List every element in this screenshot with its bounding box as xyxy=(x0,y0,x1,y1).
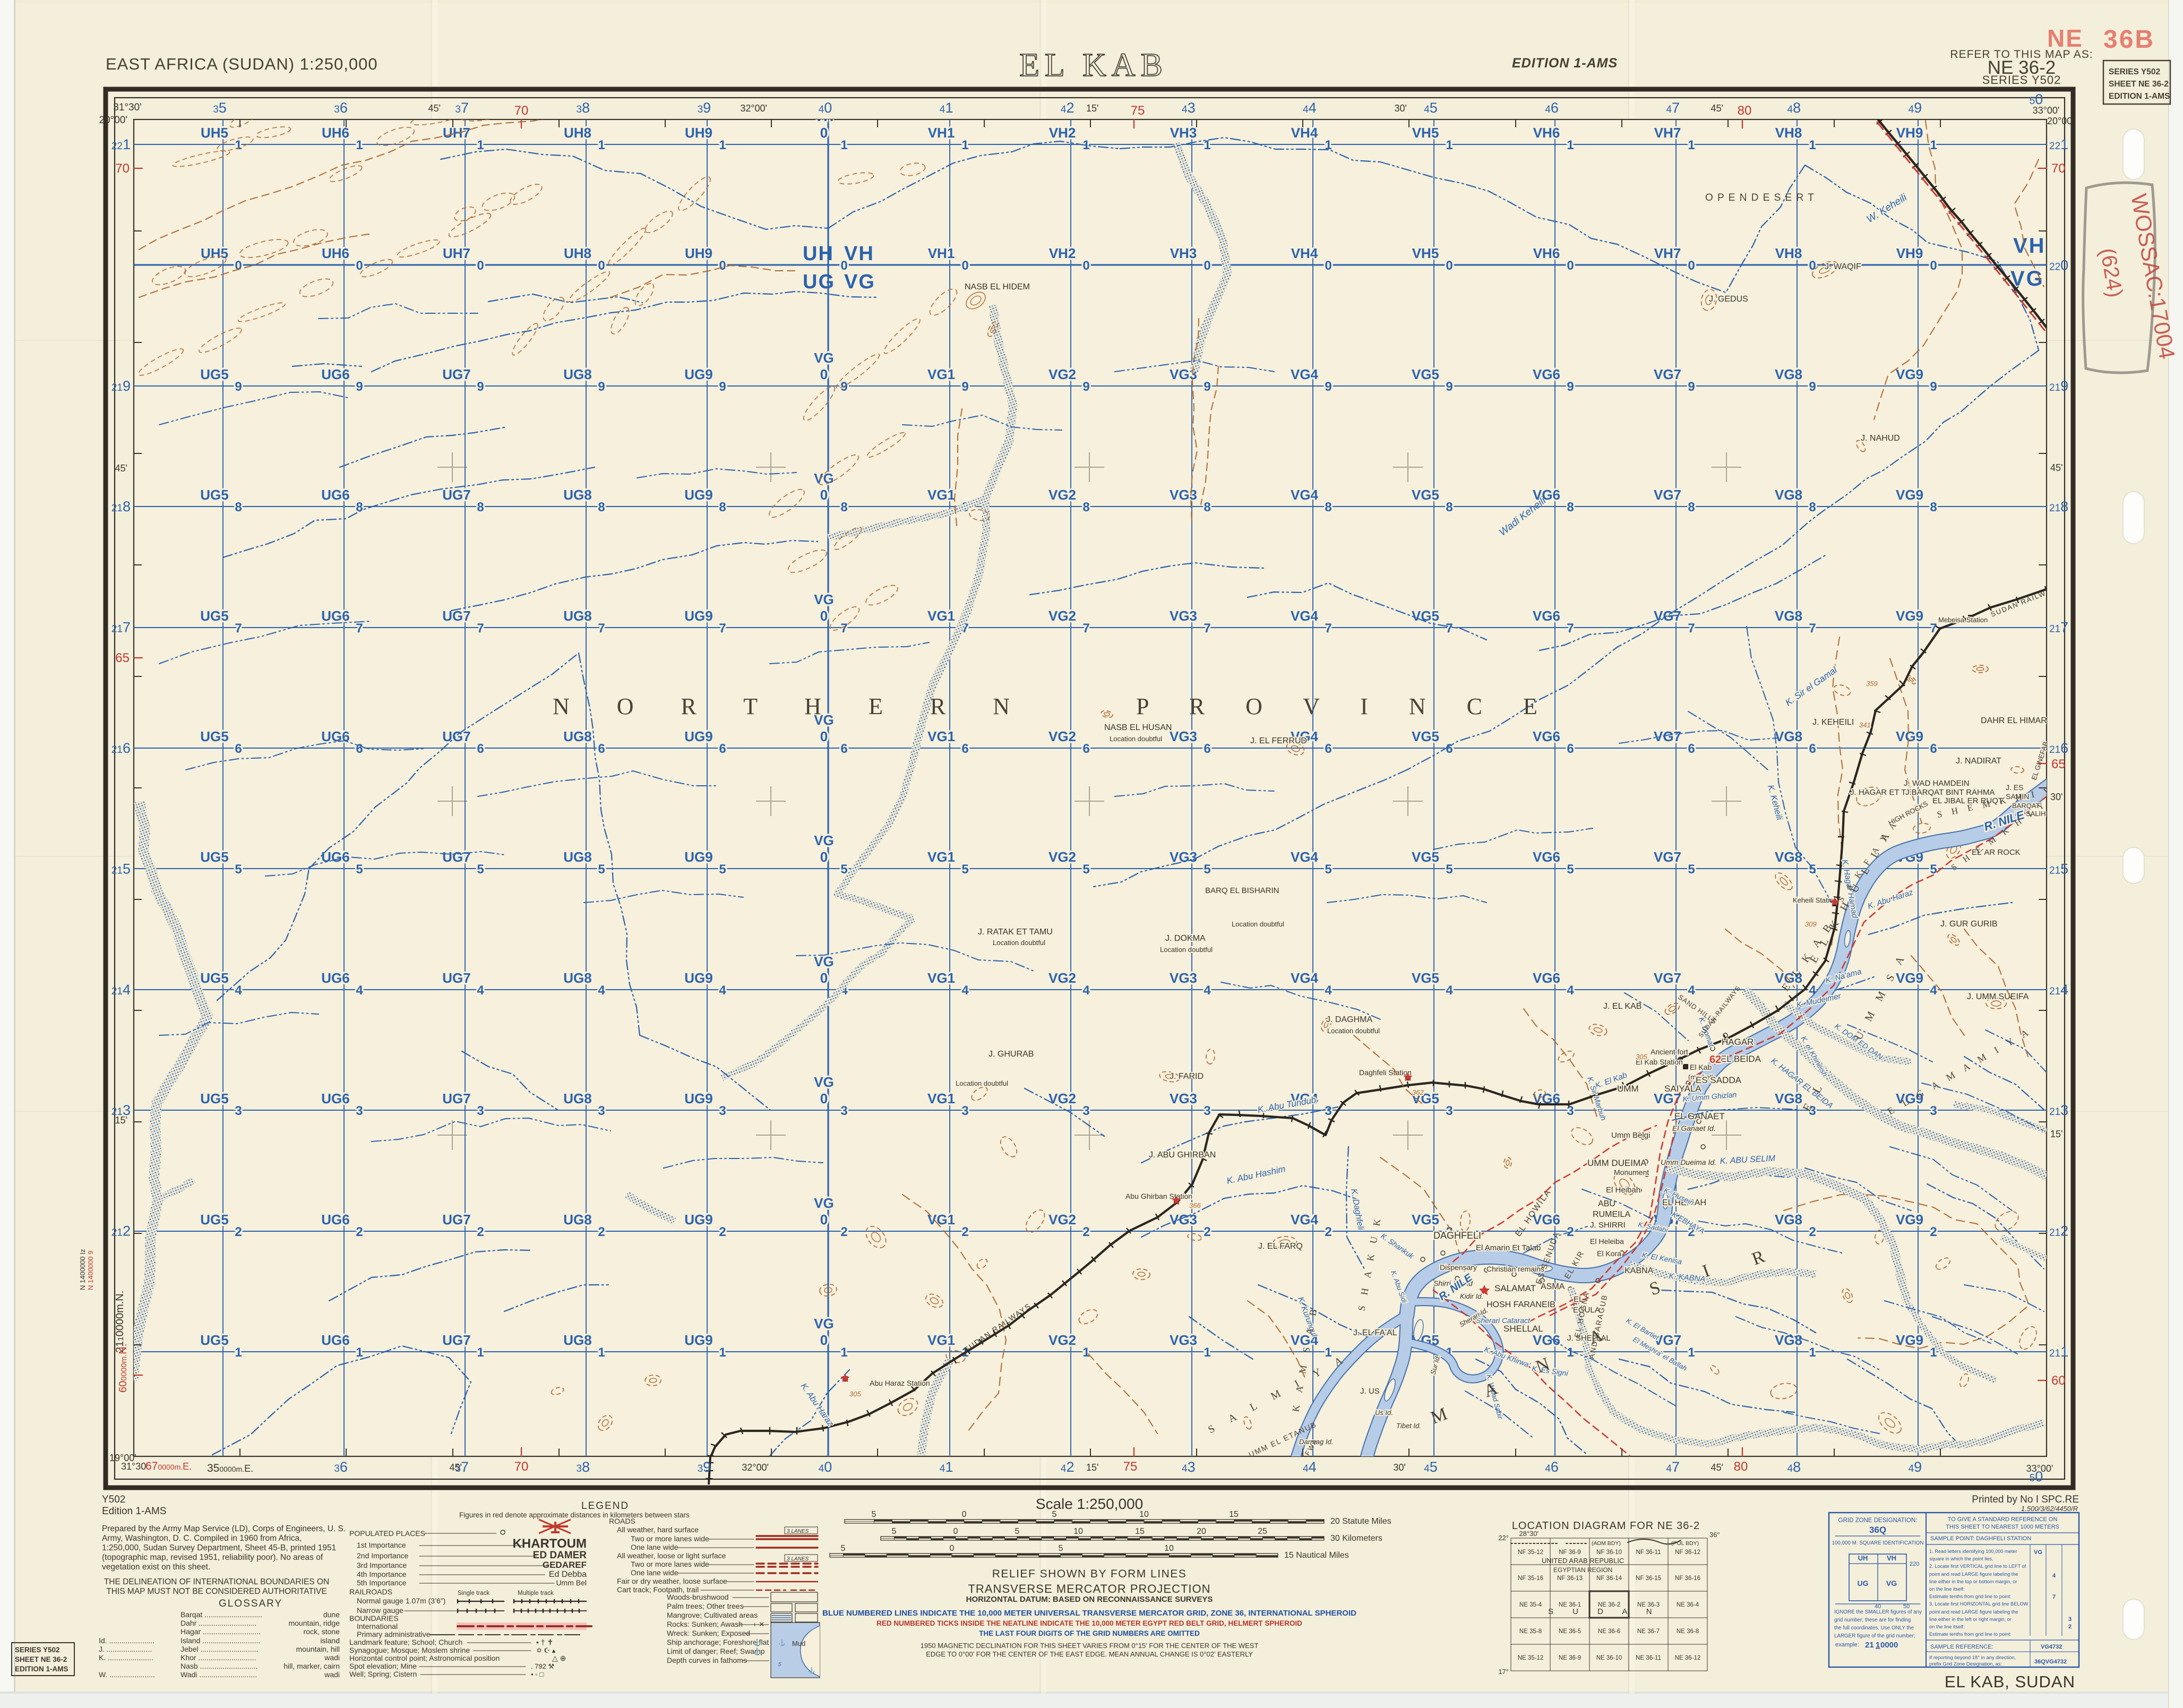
svg-text:362: 362 xyxy=(1412,1088,1424,1096)
svg-text:VG4: VG4 xyxy=(1291,970,1319,986)
svg-text:UG8: UG8 xyxy=(563,608,591,624)
svg-text:Figures in red denote approxim: Figures in red denote approximate distan… xyxy=(459,1511,690,1519)
svg-text:One lane wide: One lane wide xyxy=(631,1568,678,1577)
svg-text:4: 4 xyxy=(1204,983,1211,998)
svg-text:2: 2 xyxy=(1082,1225,1089,1239)
svg-text:VG2: VG2 xyxy=(1048,970,1076,986)
svg-text:EDGE TO 0°00’ FOR THE CENTER O: EDGE TO 0°00’ FOR THE CENTER OF THE EAST… xyxy=(926,1650,1253,1658)
svg-text:15': 15' xyxy=(1086,1462,1098,1473)
svg-text:NE 36-8: NE 36-8 xyxy=(1677,1628,1699,1635)
svg-text:5: 5 xyxy=(356,862,363,877)
svg-text:NF 36-13: NF 36-13 xyxy=(1557,1575,1583,1582)
svg-text:36Q: 36Q xyxy=(1869,1525,1886,1535)
svg-text:Island .......................: Island ............................ xyxy=(181,1636,260,1645)
svg-text:VH6: VH6 xyxy=(1533,245,1560,261)
svg-text:UG5: UG5 xyxy=(200,1212,228,1228)
svg-text:3: 3 xyxy=(477,1104,484,1118)
svg-text:VG: VG xyxy=(1886,1579,1897,1587)
svg-text:22°: 22° xyxy=(1498,1534,1509,1542)
svg-text:Depth curves in fathoms: Depth curves in fathoms xyxy=(667,1656,747,1664)
svg-text:UG8: UG8 xyxy=(563,970,591,986)
svg-text:1:250,000, Sudan Survey Depa: 1:250,000, Sudan Survey Department, Shee… xyxy=(102,1543,336,1552)
svg-text:UH8: UH8 xyxy=(564,125,591,141)
svg-text:2: 2 xyxy=(961,1225,968,1239)
svg-text:Estimate tenths from grid line: Estimate tenths from grid line to point: xyxy=(1929,1594,2011,1599)
svg-text:8: 8 xyxy=(235,500,242,514)
svg-text:33°00': 33°00' xyxy=(2033,105,2060,116)
svg-text:J. WAQIF: J. WAQIF xyxy=(1825,262,1861,271)
svg-text:VG8: VG8 xyxy=(1775,1332,1802,1348)
svg-text:45': 45' xyxy=(1711,103,1723,114)
svg-text:Mud: Mud xyxy=(792,1640,805,1647)
svg-text:4: 4 xyxy=(598,983,605,998)
svg-text:Location doubtful: Location doubtful xyxy=(993,939,1045,947)
svg-text:0: 0 xyxy=(1688,259,1695,273)
svg-text:UG7: UG7 xyxy=(442,1091,470,1106)
svg-text:1: 1 xyxy=(1567,138,1574,152)
svg-text:LEGEND: LEGEND xyxy=(581,1500,629,1512)
svg-text:El Amarin Et Talab: El Amarin Et Talab xyxy=(1476,1243,1541,1252)
svg-text:J. GUR GURIB: J. GUR GURIB xyxy=(1940,920,1998,929)
svg-text:UH: UH xyxy=(803,243,834,265)
svg-text:6: 6 xyxy=(961,742,968,756)
svg-text:30': 30' xyxy=(1394,1462,1406,1473)
svg-text:1: 1 xyxy=(598,138,605,152)
svg-text:UG7: UG7 xyxy=(442,970,470,986)
svg-text:KHARTOUM: KHARTOUM xyxy=(512,1537,587,1551)
svg-text:RED NUMBERED TICKS INSIDE THE: RED NUMBERED TICKS INSIDE THE NEATLINE I… xyxy=(876,1619,1302,1627)
svg-text:UG9: UG9 xyxy=(684,1212,712,1228)
svg-text:UG9: UG9 xyxy=(684,1332,712,1348)
svg-text:9: 9 xyxy=(1204,380,1210,394)
svg-text:VG: VG xyxy=(814,470,834,486)
svg-text:NE 35-12: NE 35-12 xyxy=(1518,1655,1544,1661)
svg-text:VG7: VG7 xyxy=(1654,366,1681,382)
svg-text:Fair or dry weather, loose sur: Fair or dry weather, loose surface xyxy=(617,1577,727,1585)
svg-text:6: 6 xyxy=(356,742,363,756)
svg-text:5: 5 xyxy=(1015,1527,1020,1536)
svg-text:UG9: UG9 xyxy=(684,608,712,624)
svg-text:20 Statute Miles: 20 Statute Miles xyxy=(1330,1517,1391,1526)
svg-text:4: 4 xyxy=(1688,983,1695,998)
svg-text:UG8: UG8 xyxy=(563,1332,591,1348)
svg-text:VH9: VH9 xyxy=(1896,245,1923,261)
svg-text:VH4: VH4 xyxy=(1291,245,1318,261)
svg-text:DAHR EL HIMAR: DAHR EL HIMAR xyxy=(1981,716,2047,725)
svg-text:5: 5 xyxy=(1052,1510,1057,1519)
svg-text:NE 36-10: NE 36-10 xyxy=(1596,1655,1622,1661)
svg-text:5: 5 xyxy=(1325,862,1331,877)
svg-text:ED DAMER: ED DAMER xyxy=(533,1550,587,1561)
svg-text:+ ✕: + ✕ xyxy=(753,1620,764,1628)
svg-text:9: 9 xyxy=(961,380,968,394)
svg-text:17°: 17° xyxy=(1498,1668,1509,1676)
svg-text:All weather, loose or light su: All weather, loose or light surface xyxy=(617,1551,726,1560)
svg-text:NF 36-10: NF 36-10 xyxy=(1596,1549,1622,1556)
svg-text:5: 5 xyxy=(1446,862,1453,877)
svg-text:75: 75 xyxy=(1131,104,1145,118)
svg-text:J. GEDUS: J. GEDUS xyxy=(1709,295,1748,304)
svg-text:32°00': 32°00' xyxy=(740,103,767,114)
svg-text:UG9: UG9 xyxy=(684,849,712,865)
svg-text:Edition 1-AMS: Edition 1-AMS xyxy=(102,1506,166,1517)
svg-text:70: 70 xyxy=(514,1460,529,1474)
svg-text:3: 3 xyxy=(2068,1616,2072,1623)
svg-text:0: 0 xyxy=(820,487,828,503)
svg-text:VG: VG xyxy=(814,1316,834,1332)
svg-text:Horizontal control point; Astr: Horizontal control point; Astronomical p… xyxy=(349,1654,500,1662)
svg-text:Khor .........................: Khor ............................ xyxy=(181,1653,256,1662)
svg-text:VG4: VG4 xyxy=(1291,1212,1319,1228)
svg-text:✡ ☪ ▴: ✡ ☪ ▴ xyxy=(536,1646,556,1654)
svg-text:VG3: VG3 xyxy=(1170,728,1197,744)
svg-text:8: 8 xyxy=(1809,500,1816,514)
svg-text:P R O V I N C E: P R O V I N C E xyxy=(1136,693,1555,719)
svg-text:36QVG4732: 36QVG4732 xyxy=(2034,1659,2067,1665)
svg-text:3 LANES: 3 LANES xyxy=(787,1529,809,1534)
svg-text:VH7: VH7 xyxy=(1654,245,1681,261)
svg-text:VG3: VG3 xyxy=(1170,487,1197,503)
svg-text:VG9: VG9 xyxy=(1896,728,1923,744)
svg-text:Barqat .......................: Barqat ............................ xyxy=(181,1610,262,1619)
svg-text:HOSH FARANEIB: HOSH FARANEIB xyxy=(1486,1300,1555,1309)
svg-text:305: 305 xyxy=(1636,1053,1647,1061)
svg-text:VG5: VG5 xyxy=(1412,728,1439,744)
svg-text:VH9: VH9 xyxy=(1896,125,1923,141)
svg-text:8: 8 xyxy=(1688,500,1695,514)
svg-text:366: 366 xyxy=(1189,1201,1201,1209)
svg-text:0: 0 xyxy=(1325,259,1331,273)
svg-text:NF 35-12: NF 35-12 xyxy=(1518,1549,1543,1556)
svg-text:7: 7 xyxy=(1446,621,1453,636)
svg-text:Nasb .........................: Nasb ............................ xyxy=(181,1662,257,1670)
svg-text:EDITION 1-AMS: EDITION 1-AMS xyxy=(1512,56,1618,71)
svg-text:⚓: ⚓ xyxy=(778,1640,786,1646)
svg-text:J. EL FA'AL: J. EL FA'AL xyxy=(1353,1328,1397,1337)
svg-text:EAST AFRICA (SUDAN) 1:250,000: EAST AFRICA (SUDAN) 1:250,000 xyxy=(106,55,378,73)
svg-text:Normal gauge 1.07m (3’6”): Normal gauge 1.07m (3’6”) xyxy=(357,1597,445,1605)
svg-text:THE DELINEATION OF INTERNATION: THE DELINEATION OF INTERNATIONAL BOUNDAR… xyxy=(104,1577,329,1586)
svg-text:VG2: VG2 xyxy=(1048,608,1076,624)
svg-text:36B: 36B xyxy=(2103,25,2155,54)
svg-text:EL BEIDA: EL BEIDA xyxy=(1721,1054,1761,1064)
svg-text:Wadi .........................: Wadi ............................ xyxy=(181,1670,257,1679)
svg-text:8: 8 xyxy=(1930,500,1937,514)
svg-text:EL GANAET: EL GANAET xyxy=(1674,1111,1725,1121)
svg-text:Location doubtful: Location doubtful xyxy=(1110,735,1162,743)
svg-text:9: 9 xyxy=(235,380,242,394)
svg-text:3. Locate first HORIZONTAL gri: 3. Locate first HORIZONTAL grid line BEL… xyxy=(1929,1601,2029,1607)
svg-text:30': 30' xyxy=(1395,103,1407,114)
svg-text:VG6: VG6 xyxy=(1533,1332,1560,1348)
svg-text:. 792 ⚒: . 792 ⚒ xyxy=(531,1662,554,1670)
svg-text:DAGHFELI: DAGHFELI xyxy=(1433,1230,1481,1241)
svg-text:0: 0 xyxy=(820,1332,828,1348)
svg-text:J. US: J. US xyxy=(1360,1387,1380,1396)
svg-text:J. HAGAR ET TIB: J. HAGAR ET TIB xyxy=(1850,788,1913,797)
svg-text:5: 5 xyxy=(841,1544,846,1553)
svg-text:1: 1 xyxy=(235,138,242,152)
svg-text:7: 7 xyxy=(1567,621,1574,636)
svg-text:NE 36-5: NE 36-5 xyxy=(1559,1628,1581,1635)
svg-text:NE 36-11: NE 36-11 xyxy=(1636,1655,1661,1661)
svg-text:J. DOKMA: J. DOKMA xyxy=(1165,934,1206,943)
svg-text:3: 3 xyxy=(235,1104,242,1118)
svg-text:UG5: UG5 xyxy=(200,366,228,382)
svg-text:5: 5 xyxy=(872,1510,876,1519)
svg-text:4th Importance: 4th Importance xyxy=(357,1570,407,1578)
svg-text:N 1400000 Iz: N 1400000 Iz xyxy=(79,1249,87,1290)
svg-text:VH1: VH1 xyxy=(928,125,955,141)
svg-text:SAIYALA: SAIYALA xyxy=(1664,1084,1701,1094)
svg-text:VH6: VH6 xyxy=(1533,125,1560,141)
svg-text:5th Importance: 5th Importance xyxy=(357,1578,407,1587)
svg-text:4: 4 xyxy=(1446,983,1453,998)
svg-text:7: 7 xyxy=(1204,621,1210,636)
svg-text:VG9: VG9 xyxy=(1896,366,1923,382)
svg-text:UMM DUEIMA: UMM DUEIMA xyxy=(1587,1158,1647,1168)
svg-text:line either in the left or rig: line either in the left or right margin,… xyxy=(1929,1617,2012,1622)
svg-text:VG3: VG3 xyxy=(1170,1091,1197,1106)
svg-text:Woods-brushwood: Woods-brushwood xyxy=(667,1593,728,1601)
svg-text:7: 7 xyxy=(477,621,484,636)
svg-text:UG9: UG9 xyxy=(684,1091,712,1106)
svg-text:J. GHURAB: J. GHURAB xyxy=(989,1050,1034,1059)
svg-text:3: 3 xyxy=(598,1104,605,1118)
svg-text:UH6: UH6 xyxy=(322,245,349,261)
svg-text:0: 0 xyxy=(598,259,605,273)
svg-text:0: 0 xyxy=(820,1212,828,1228)
svg-text:1.500/3/62/4450/R: 1.500/3/62/4450/R xyxy=(2021,1505,2078,1513)
svg-text:VH8: VH8 xyxy=(1775,245,1802,261)
svg-text:3: 3 xyxy=(719,1104,726,1118)
svg-text:Narrow gauge: Narrow gauge xyxy=(357,1606,403,1615)
svg-text:VG6: VG6 xyxy=(1533,849,1560,865)
svg-text:Monument: Monument xyxy=(1614,1168,1649,1177)
svg-text:Single track: Single track xyxy=(458,1590,489,1597)
svg-text:Tibet Id.: Tibet Id. xyxy=(1396,1422,1421,1430)
svg-text:NASB EL HIDEM: NASB EL HIDEM xyxy=(965,282,1030,291)
svg-text:GRID ZONE DESIGNATION:: GRID ZONE DESIGNATION: xyxy=(1838,1517,1918,1524)
svg-text:UG6: UG6 xyxy=(321,1091,349,1106)
svg-text:80: 80 xyxy=(1738,104,1752,118)
svg-text:VG4732: VG4732 xyxy=(2041,1644,2062,1650)
svg-text:6: 6 xyxy=(840,742,847,756)
svg-text:(ADM BDY): (ADM BDY) xyxy=(1592,1540,1621,1547)
svg-text:1: 1 xyxy=(356,1345,363,1360)
svg-text:ABU: ABU xyxy=(1598,1199,1615,1208)
svg-text:VG9: VG9 xyxy=(1896,1212,1923,1228)
svg-text:UG5: UG5 xyxy=(200,1332,228,1348)
svg-text:VG3: VG3 xyxy=(1170,1212,1197,1228)
svg-text:Wreck: Sunken; Exposed: Wreck: Sunken; Exposed xyxy=(667,1629,750,1637)
svg-text:0: 0 xyxy=(961,259,968,273)
svg-text:• ◦ □: • ◦ □ xyxy=(531,1670,544,1678)
svg-text:VG2: VG2 xyxy=(1048,1091,1076,1106)
svg-text:J. EL FARQ: J. EL FARQ xyxy=(1258,1242,1303,1251)
svg-text:8: 8 xyxy=(477,500,484,514)
svg-text:2: 2 xyxy=(719,1225,726,1239)
svg-text:Christian remains: Christian remains xyxy=(1486,1265,1544,1273)
svg-text:15: 15 xyxy=(1229,1510,1239,1519)
svg-text:J. RATAK ET TAMU: J. RATAK ET TAMU xyxy=(978,928,1053,937)
svg-text:International: International xyxy=(357,1622,398,1630)
svg-text:Location doubtful: Location doubtful xyxy=(1232,920,1284,928)
svg-text:J. DAGHMA: J. DAGHMA xyxy=(1326,1015,1372,1024)
svg-text:VG6: VG6 xyxy=(1533,970,1560,986)
svg-text:El Ganaet Id.: El Ganaet Id. xyxy=(1672,1124,1716,1132)
svg-text:SALAMAT: SALAMAT xyxy=(1494,1283,1536,1293)
svg-text:example:: example: xyxy=(1835,1642,1859,1648)
svg-text:the full coordinates. Use: the full coordinates. Use ONLY the xyxy=(1834,1625,1914,1631)
svg-text:SAMPLE POINT: DAGHFELI STATION: SAMPLE POINT: DAGHFELI STATION xyxy=(1930,1535,2031,1542)
svg-text:IGNORE the SMALLER figures of: IGNORE the SMALLER figures of any xyxy=(1834,1609,1922,1615)
svg-text:VG: VG xyxy=(844,271,875,293)
svg-text:1: 1 xyxy=(477,138,484,152)
svg-text:1: 1 xyxy=(1688,1345,1695,1360)
svg-text:3: 3 xyxy=(1567,1104,1574,1118)
svg-text:EDITION 1-AMS: EDITION 1-AMS xyxy=(2109,92,2170,101)
svg-text:VG1: VG1 xyxy=(927,1332,955,1348)
svg-text:J. EL KAB: J. EL KAB xyxy=(1603,1002,1641,1011)
svg-text:UG8: UG8 xyxy=(563,366,591,382)
svg-text:NF 36-16: NF 36-16 xyxy=(1675,1575,1700,1582)
svg-text:UMM: UMM xyxy=(1617,1084,1639,1094)
svg-text:1: 1 xyxy=(477,1345,484,1360)
svg-text:RELIEF SHOWN BY FORM LINES: RELIEF SHOWN BY FORM LINES xyxy=(992,1568,1187,1580)
svg-text:Abu Ghirban Station: Abu Ghirban Station xyxy=(1125,1192,1192,1200)
svg-text:UG9: UG9 xyxy=(684,728,712,744)
svg-text:VG6: VG6 xyxy=(1533,728,1560,744)
svg-text:VH2: VH2 xyxy=(1049,245,1076,261)
svg-text:UG6: UG6 xyxy=(321,366,349,382)
svg-text:0: 0 xyxy=(1204,259,1210,273)
svg-text:Kidir Id.: Kidir Id. xyxy=(1460,1292,1483,1300)
svg-text:island: island xyxy=(320,1636,340,1645)
svg-text:(topographic map, revised 1: (topographic map, revised 1951, reliabil… xyxy=(102,1553,323,1562)
svg-text:VG8: VG8 xyxy=(1775,1212,1802,1228)
svg-text:J. NAHUD: J. NAHUD xyxy=(1861,434,1900,443)
svg-text:100,000 M. SQUARE IDENTIFICATI: 100,000 M. SQUARE IDENTIFICATION xyxy=(1832,1540,1924,1546)
svg-text:5: 5 xyxy=(1204,862,1210,877)
svg-text:2: 2 xyxy=(235,1225,242,1239)
svg-text:RUMEILA: RUMEILA xyxy=(1593,1210,1630,1219)
svg-text:NE 36-4: NE 36-4 xyxy=(1677,1602,1699,1608)
svg-text:2110000m.N.: 2110000m.N. xyxy=(114,1291,126,1353)
svg-text:36°: 36° xyxy=(1709,1531,1720,1539)
svg-text:4: 4 xyxy=(356,983,363,998)
svg-text:UG7: UG7 xyxy=(442,849,470,865)
svg-text:UG7: UG7 xyxy=(442,487,470,503)
svg-text:Well; Spring; Cistern: Well; Spring; Cistern xyxy=(349,1670,417,1678)
svg-text:9: 9 xyxy=(1446,380,1453,394)
svg-text:UH5: UH5 xyxy=(201,125,228,141)
svg-text:point and read LARGE figure la: point and read LARGE figure labeling the xyxy=(1929,1609,2018,1615)
svg-text:8: 8 xyxy=(1567,500,1574,514)
svg-text:SHELLAL: SHELLAL xyxy=(1503,1324,1543,1334)
svg-text:3: 3 xyxy=(1325,1104,1331,1118)
svg-text:VG1: VG1 xyxy=(927,849,955,865)
svg-text:UH9: UH9 xyxy=(685,125,712,141)
svg-text:3: 3 xyxy=(961,1104,968,1118)
svg-text:NF 36-12: NF 36-12 xyxy=(1675,1549,1700,1556)
svg-text:UH8: UH8 xyxy=(564,245,591,261)
svg-text:VG5: VG5 xyxy=(1412,366,1439,382)
svg-text:1st Importance: 1st Importance xyxy=(357,1541,406,1549)
svg-text:square in which the point lies: square in which the point lies. xyxy=(1929,1556,1993,1561)
svg-text:Us Id.: Us Id. xyxy=(1375,1409,1393,1417)
svg-text:on the line itself:: on the line itself: xyxy=(1929,1586,1964,1592)
svg-text:UG5: UG5 xyxy=(200,1091,228,1106)
svg-text:20: 20 xyxy=(1197,1527,1206,1536)
svg-text:45': 45' xyxy=(450,1462,462,1473)
svg-text:NF 35-16: NF 35-16 xyxy=(1518,1575,1543,1582)
svg-text:Ancient fort: Ancient fort xyxy=(1651,1048,1688,1056)
svg-text:SERIES Y502: SERIES Y502 xyxy=(15,1646,60,1654)
svg-text:El Kora: El Kora xyxy=(1597,1249,1621,1258)
svg-text:⚓: ⚓ xyxy=(808,1667,815,1674)
svg-text:VG: VG xyxy=(814,591,834,607)
svg-text:4: 4 xyxy=(719,983,726,998)
svg-text:UH6: UH6 xyxy=(322,125,349,141)
svg-text:4: 4 xyxy=(1082,983,1090,998)
svg-text:2: 2 xyxy=(1930,1225,1937,1239)
svg-text:1: 1 xyxy=(1325,1345,1331,1360)
svg-text:VG1: VG1 xyxy=(927,728,955,744)
svg-text:6: 6 xyxy=(1809,742,1816,756)
svg-text:0: 0 xyxy=(962,1510,967,1519)
svg-text:2: 2 xyxy=(840,1225,847,1239)
svg-text:7: 7 xyxy=(1082,621,1089,636)
svg-text:2: 2 xyxy=(598,1225,605,1239)
svg-text:O P E N D E S E R T: O P E N D E S E R T xyxy=(1705,192,1815,203)
svg-text:SAMPLE REFERENCE:: SAMPLE REFERENCE: xyxy=(1930,1644,1993,1650)
svg-text:5: 5 xyxy=(1688,862,1695,877)
svg-text:0: 0 xyxy=(820,1091,828,1106)
svg-text:0: 0 xyxy=(820,849,828,865)
svg-text:El Heleiba: El Heleiba xyxy=(1590,1237,1624,1246)
svg-text:9: 9 xyxy=(477,380,484,394)
svg-text:BOUNDARIES: BOUNDARIES xyxy=(349,1614,399,1623)
svg-text:6: 6 xyxy=(598,742,605,756)
svg-text:mountain, ridge: mountain, ridge xyxy=(288,1619,340,1627)
svg-text:NE 35-8: NE 35-8 xyxy=(1519,1628,1542,1635)
svg-text:point and read LARGE figure la: point and read LARGE figure labeling the xyxy=(1929,1572,2018,1577)
svg-text:J. ......................: J. ...................... xyxy=(99,1645,152,1653)
svg-text:3rd Importance: 3rd Importance xyxy=(357,1561,407,1569)
svg-text:wadi: wadi xyxy=(324,1653,340,1662)
svg-text:VG2: VG2 xyxy=(1048,1332,1076,1348)
svg-text:VG8: VG8 xyxy=(1775,728,1802,744)
svg-text:Landmark feature; School; Chur: Landmark feature; School; Church xyxy=(349,1638,462,1646)
svg-text:VH4: VH4 xyxy=(1291,125,1318,141)
svg-text:VG2: VG2 xyxy=(1048,849,1076,865)
svg-text:UG7: UG7 xyxy=(442,608,470,624)
svg-text:15: 15 xyxy=(1135,1527,1145,1536)
svg-text:RAILROADS: RAILROADS xyxy=(349,1587,392,1596)
svg-text:NE 36-9: NE 36-9 xyxy=(1559,1655,1581,1661)
svg-text:9: 9 xyxy=(719,380,726,394)
svg-text:0: 0 xyxy=(477,259,484,273)
svg-text:25: 25 xyxy=(1258,1527,1267,1536)
svg-text:1: 1 xyxy=(1809,138,1816,152)
svg-text:El Kab: El Kab xyxy=(1690,1063,1712,1071)
svg-text:70: 70 xyxy=(514,104,529,118)
svg-text:TO GIVE A STANDARD REFERENCE O: TO GIVE A STANDARD REFERENCE ON xyxy=(1948,1516,2058,1523)
svg-text:3: 3 xyxy=(1204,1104,1210,1118)
svg-text:dune: dune xyxy=(323,1610,340,1619)
svg-text:K. ......................: K. ...................... xyxy=(99,1653,153,1662)
